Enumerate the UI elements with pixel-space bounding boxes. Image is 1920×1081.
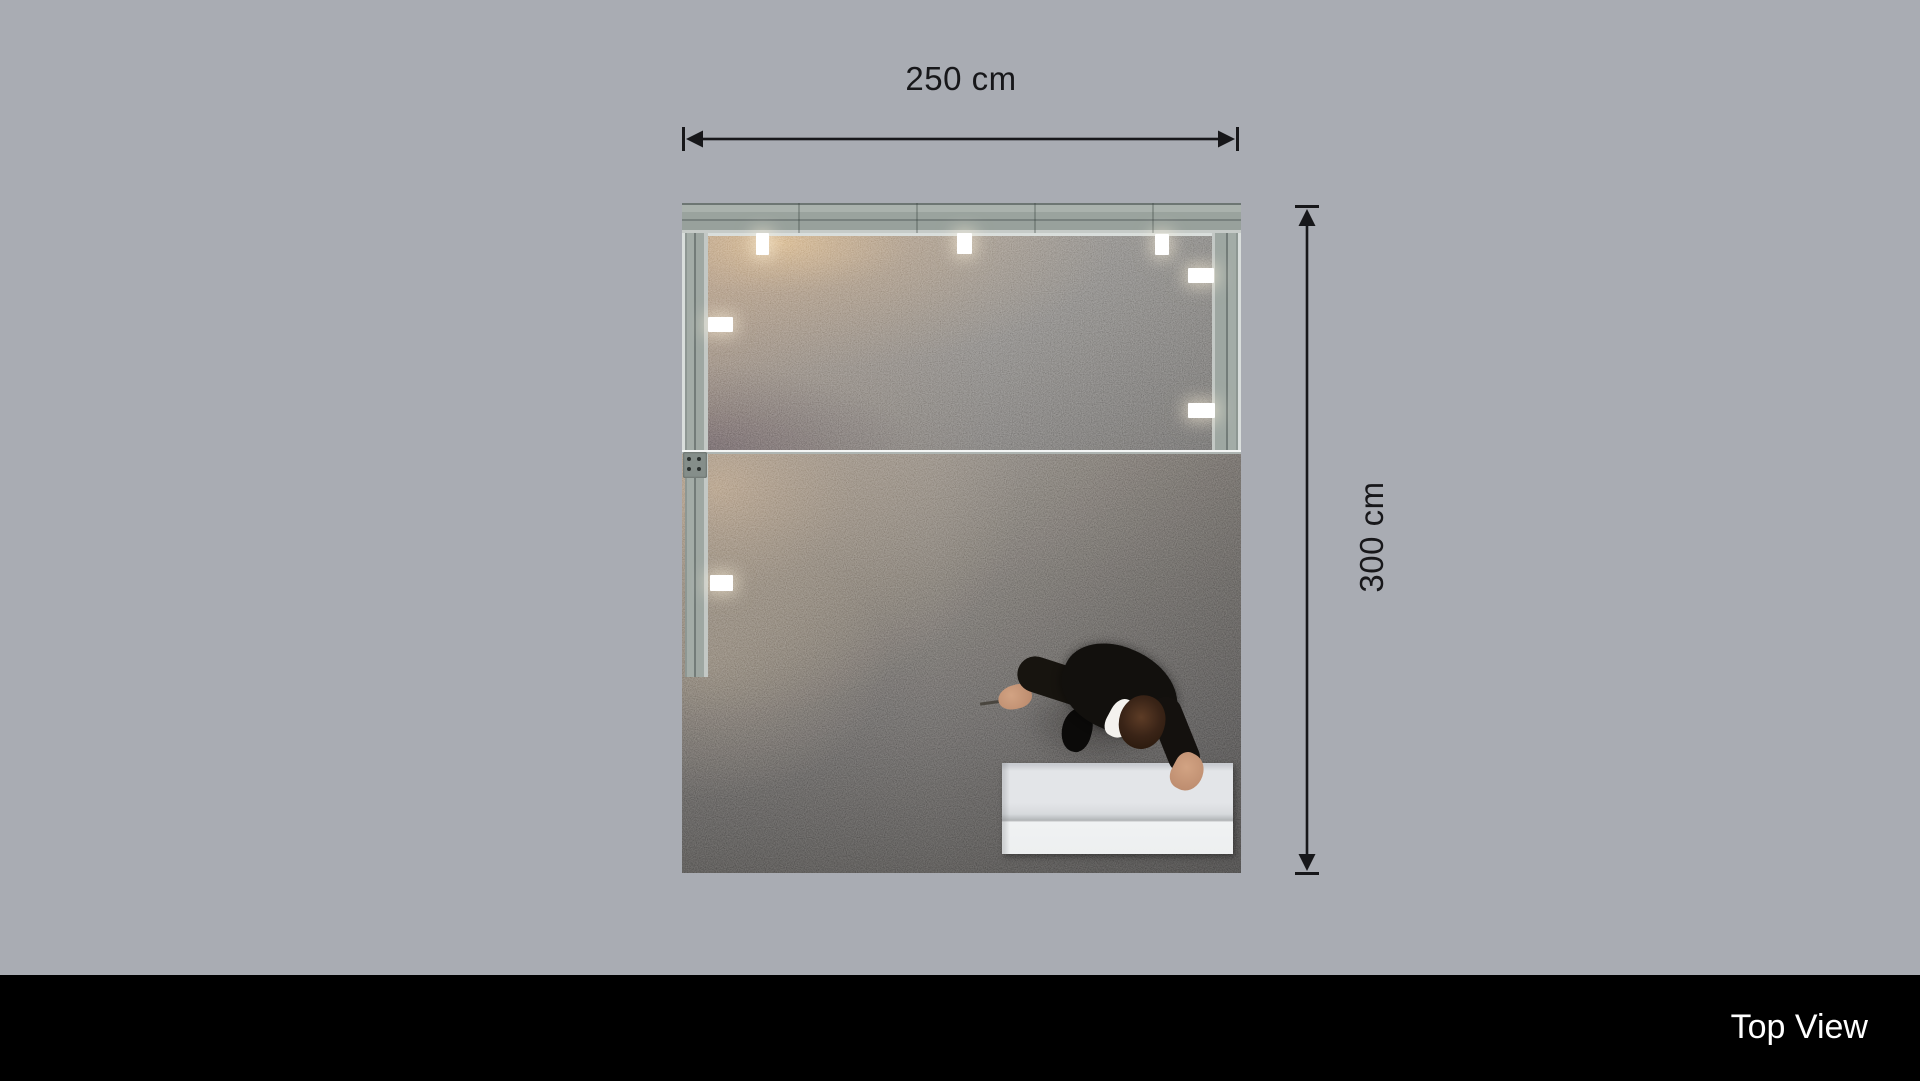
screw-dot: [687, 467, 691, 471]
left-wall-upper: [685, 233, 708, 450]
right-wall-light: [1188, 268, 1214, 283]
left-wall-light: [710, 575, 733, 591]
booth-back-wall-header: [682, 203, 1241, 233]
view-title: Top View: [1731, 975, 1868, 1081]
right-wall-light: [1188, 403, 1215, 418]
screw-dot: [687, 457, 691, 461]
wall-connector-plate: [683, 452, 707, 478]
ceiling-light: [957, 233, 972, 254]
booth-render: [682, 203, 1241, 873]
left-wall-light: [708, 317, 733, 332]
slide-canvas: 250 cm 300 cm Top View: [0, 0, 1920, 1081]
width-dimension-line: [682, 127, 1239, 151]
footer-bar: Top View: [0, 975, 1920, 1081]
screw-dot: [697, 457, 701, 461]
height-dimension-line: [1295, 205, 1319, 875]
upper-room-frame: [682, 233, 1241, 454]
width-dimension-label: 250 cm: [905, 60, 1016, 98]
wall-divider: [682, 450, 1241, 454]
height-dimension-label: 300 cm: [1353, 481, 1391, 592]
screw-dot: [697, 467, 701, 471]
person-top-view: [978, 643, 1218, 803]
right-wall: [1212, 233, 1238, 450]
ceiling-light: [1155, 234, 1169, 255]
left-wall-lower: [685, 454, 708, 677]
ceiling-light: [756, 233, 769, 255]
